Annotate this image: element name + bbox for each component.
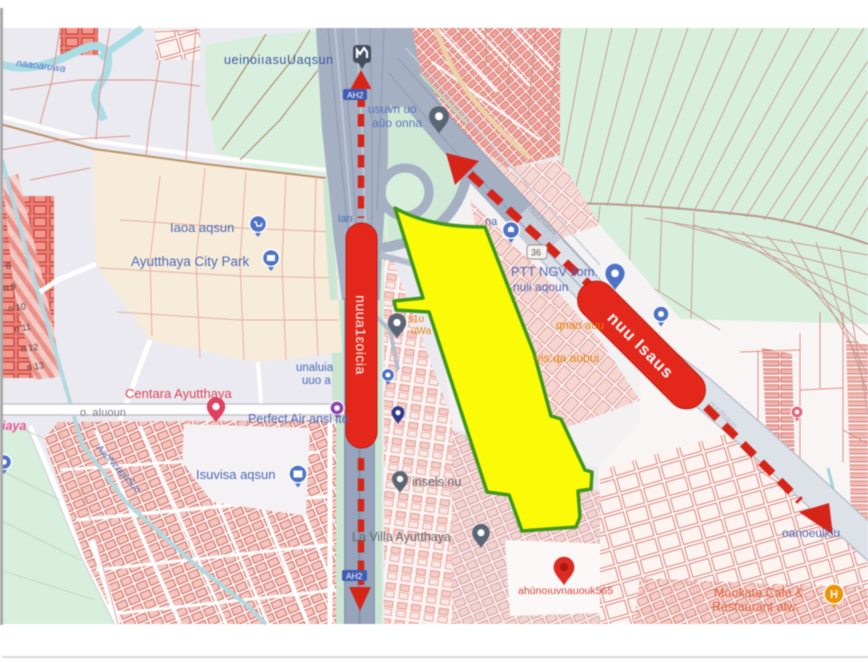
svg-text:nuua1ɛoicia: nuua1ɛoicia [353,295,369,375]
svg-text:vis:qa aubui: vis:qa aubui [535,351,599,365]
svg-text:36: 36 [531,248,541,258]
svg-text:uuo a: uuo a [302,375,331,387]
svg-text:ahūnoıuvnauouk565: ahūnoıuvnauouk565 [518,585,613,597]
svg-text:unaluia: unaluia [296,362,334,374]
svg-text:uWa: uWa [411,326,432,337]
svg-text:Isuvisa aqsun: Isuvisa aqsun [196,467,276,482]
svg-text:insels:nu: insels:nu [412,475,461,489]
svg-text:AH2: AH2 [346,571,363,581]
svg-text:iaya: iaya [2,419,26,433]
svg-text:Iaoa aqsun: Iaoa aqsun [170,220,234,235]
svg-text:na: na [485,216,498,228]
svg-text:qnao auu: qnao auu [556,320,604,332]
svg-text:Restaurant atw.: Restaurant atw. [712,600,799,614]
svg-text:PTT NGV ilom.: PTT NGV ilom. [511,264,598,279]
svg-text:o. aIuoun: o. aIuoun [80,407,126,419]
svg-text:ian: ian [338,213,353,225]
svg-text:ueinoiıasuUaqsun: ueinoiıasuUaqsun [224,53,334,67]
svg-text:aūo onna: aūo onna [372,116,422,130]
svg-text:n 9: n 9 [3,281,17,293]
svg-text:La Villa Ayutthaya: La Villa Ayutthaya [352,530,451,544]
svg-text:nuii aqoun: nuii aqoun [513,280,568,294]
svg-text:oanoeuikiu: oanoeuikiu [782,526,840,540]
svg-text:Ayutthaya City Park: Ayutthaya City Park [131,254,250,269]
svg-text:usuvn uo: usuvn uo [368,102,417,116]
svg-text:s1u: s1u [408,314,424,325]
svg-text:Mookata Cafe &: Mookata Cafe & [714,586,804,600]
svg-text:AH2: AH2 [347,90,364,100]
